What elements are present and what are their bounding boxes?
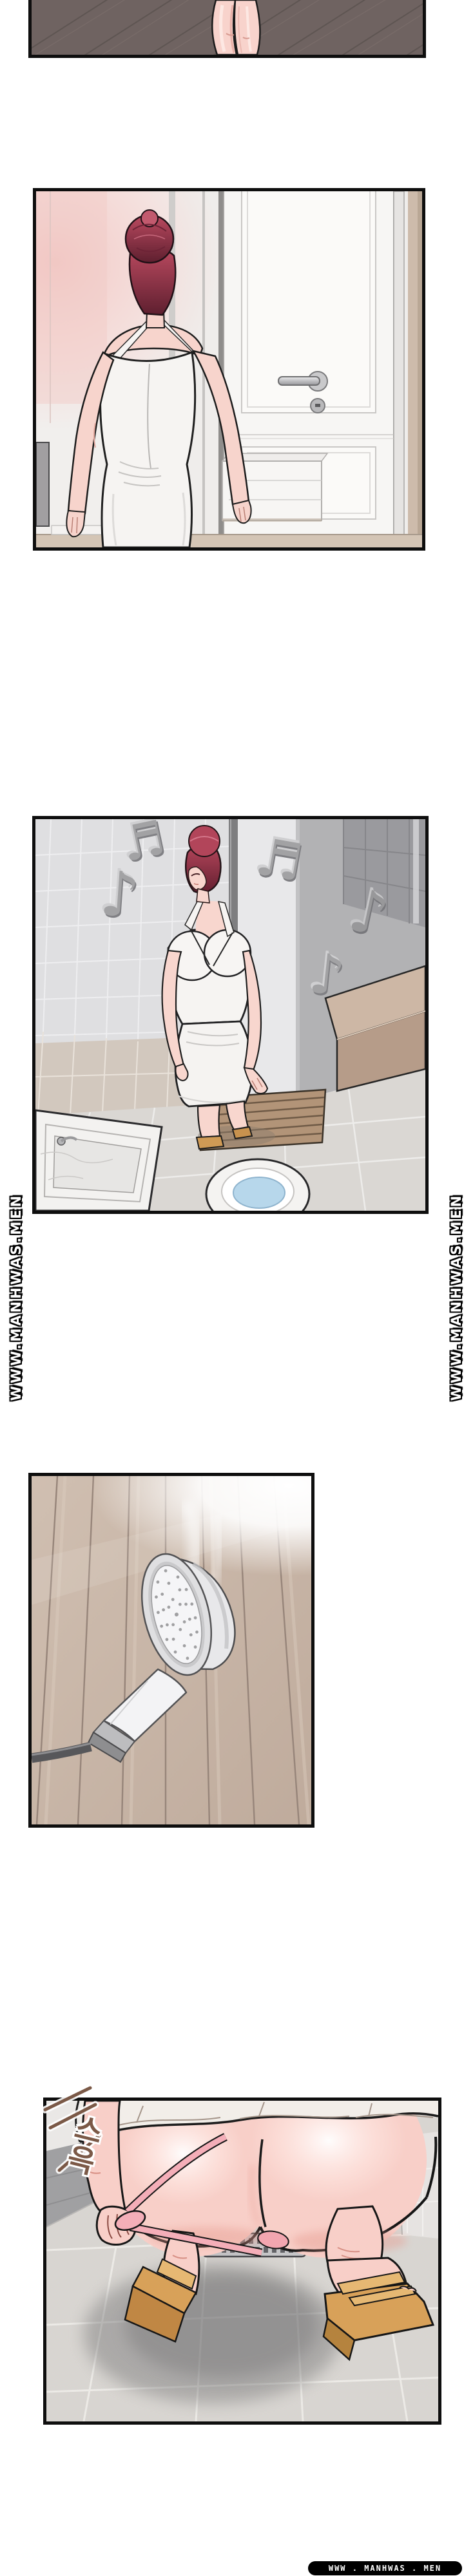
sandal (233, 1127, 252, 1139)
sandal (197, 1136, 224, 1149)
panel-bathroom-humming: ♬ ♬ ♬ ♪ ♪ ♪ ♬ ♬ ♬ ♪ ♪ ♪ (32, 816, 429, 1214)
beige-trim-shade (418, 191, 422, 547)
svg-text:♪: ♪ (97, 857, 142, 932)
watermark-right: WWW.MANHWAS.MEN (445, 1184, 464, 1410)
watermark-bottom-pill: WWW . MANHWAS . MEN (308, 2561, 462, 2575)
neck (197, 889, 209, 903)
svg-text:♪: ♪ (306, 941, 348, 1009)
mirror-edge (36, 442, 49, 526)
panel-legs-wood-floor (28, 0, 426, 58)
watermark-left: WWW.MANHWAS.MEN (5, 1184, 27, 1410)
right-ankle (326, 2206, 383, 2263)
door-jamb (394, 191, 404, 539)
floor (36, 535, 422, 547)
panel-shower-head (28, 1473, 314, 1828)
marble-tub (35, 1110, 162, 1211)
panel-hallway-door (33, 188, 425, 551)
front-leg (198, 1105, 220, 1137)
white-dress (101, 352, 195, 547)
dress-skirt (175, 1021, 253, 1106)
bare-legs (212, 0, 260, 55)
wall-pipe (413, 819, 419, 923)
watermark-bottom-text: WWW . MANHWAS . MEN (329, 2564, 441, 2573)
toilet-water (233, 1177, 285, 1208)
hair-top (189, 826, 220, 857)
webtoon-page: ♬ ♬ ♬ ♪ ♪ ♪ ♬ ♬ ♬ ♪ ♪ ♪ (0, 0, 464, 2576)
